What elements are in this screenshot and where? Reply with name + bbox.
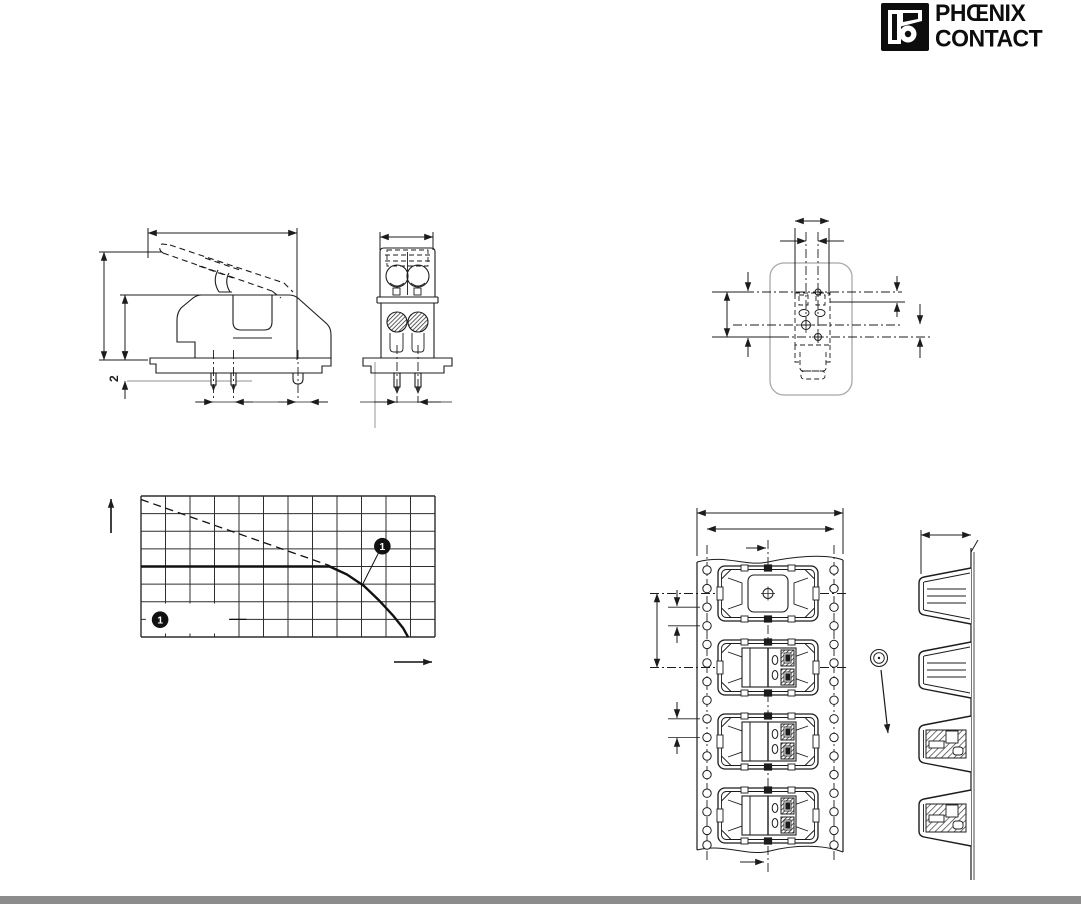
footer-bar (0, 896, 1081, 904)
dimension-label-2: 2 (107, 375, 121, 382)
callout-marker-label: 1 (379, 541, 385, 553)
derating-chart: 11 (111, 496, 435, 662)
datasheet-page: PHŒNIX CONTACT (0, 0, 1081, 910)
profile-dimensions (921, 530, 971, 574)
pcb-drill-plan-drawing (712, 221, 930, 395)
carrier-tape-side-profile-drawing (919, 530, 978, 880)
series-nominal-limit (141, 500, 330, 566)
pin-centerlines (214, 350, 299, 399)
legend-marker-label: 1 (157, 615, 163, 627)
connector-side-view-drawing: 2 (99, 228, 331, 402)
feed-direction-detail (871, 650, 889, 734)
connector-front-view-drawing (360, 232, 452, 428)
callout-leader-line (363, 553, 379, 584)
lever-dashed-outline (160, 244, 293, 298)
technical-drawings: 2 (0, 0, 1081, 910)
carrier-tape-top-view-drawing (650, 508, 848, 872)
tape-pockets (717, 565, 819, 844)
feed-direction-arrow (881, 670, 888, 733)
